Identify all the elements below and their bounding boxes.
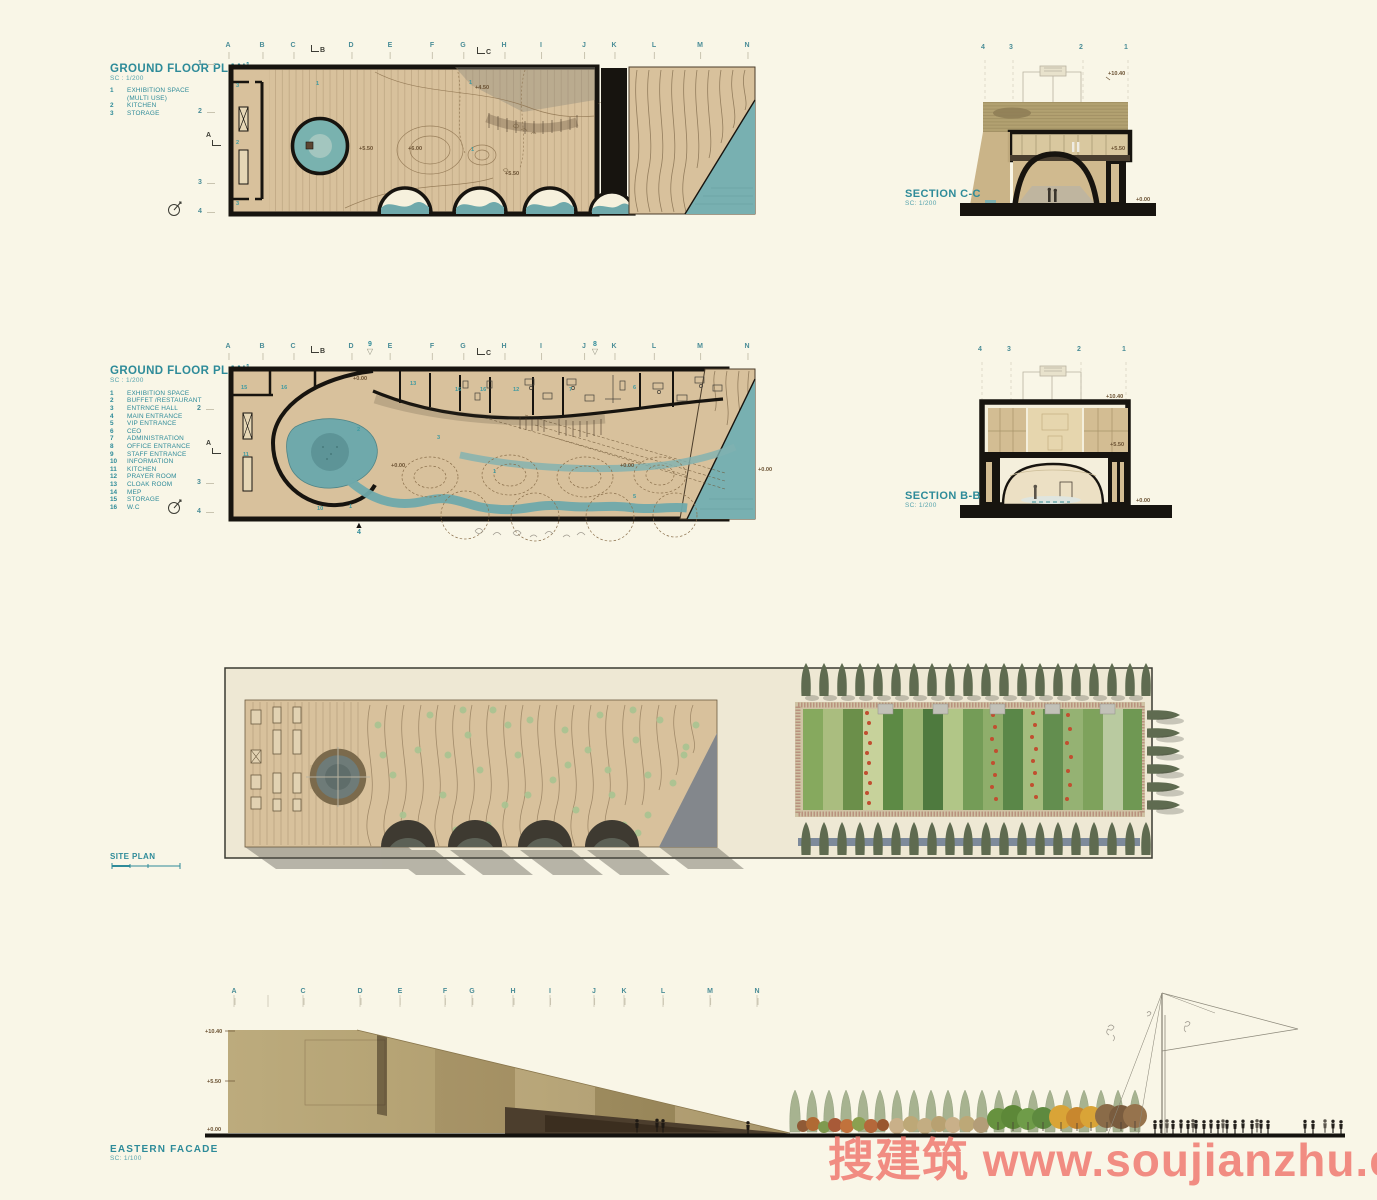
crop-strips xyxy=(803,709,1142,810)
building-roof xyxy=(245,700,717,847)
level-label: +5.50 xyxy=(359,146,373,152)
room-label: 3 xyxy=(236,83,239,89)
north-arrow-icon xyxy=(166,198,186,218)
climber-sketches xyxy=(1107,1012,1190,1042)
grid-ticks xyxy=(234,995,757,1007)
level-label: +10.40 xyxy=(1108,71,1125,77)
section-flag-c: C xyxy=(477,47,491,56)
entrance-marker-9: 9▽ xyxy=(363,341,377,355)
row-number: 3 xyxy=(198,179,202,186)
grid-letter: C xyxy=(290,343,295,350)
site-plan-titleblock: SITE PLAN xyxy=(110,852,155,861)
grid-letter: F xyxy=(430,343,434,350)
room-label: 2 xyxy=(357,427,360,433)
level-label: +0.00 xyxy=(758,467,772,473)
section-flag-b: B xyxy=(311,346,325,355)
section-flag-b: B xyxy=(311,45,325,54)
grid-letter: D xyxy=(348,42,353,49)
grid-letter: I xyxy=(540,343,542,350)
triangle-down-icon: ▽ xyxy=(588,348,602,355)
upper-plan-drawing: +5.50 +6.00 +4.50 +5.50 3 2 3 1 1 1 xyxy=(225,58,760,218)
row-number: 2 xyxy=(197,405,201,412)
watermark: 搜建筑 www.soujianzhu.cn xyxy=(828,1124,1377,1190)
grid-letter: C xyxy=(290,42,295,49)
room-label: 1 xyxy=(316,81,319,87)
north-arrow-icon xyxy=(166,496,186,516)
grid-letter: K xyxy=(611,42,616,49)
section-cc-titleblock: SECTION C-C SC: 1/200 xyxy=(905,188,981,207)
room-label: 2 xyxy=(236,140,239,146)
grid-letter: H xyxy=(501,42,506,49)
ground-bar xyxy=(960,203,1156,216)
facade-titleblock: EASTERN FACADE SC: 1/100 xyxy=(110,1144,218,1162)
row-number: 4 xyxy=(197,508,201,515)
room-label: 15 xyxy=(241,385,247,391)
section-bb-drawing: +10.40 +5.50 +0.00 xyxy=(960,352,1172,527)
section-bb-scale: SC: 1/200 xyxy=(905,502,981,509)
grid-letter: D xyxy=(348,343,353,350)
drawing-sheet: GROUND FLOOR PLAN1 SC : 1/200 1 EXHIBITI… xyxy=(0,0,1377,1200)
level-label: +10.40 xyxy=(1106,394,1123,400)
section-flag-a: A xyxy=(206,132,211,139)
room-label: 1 xyxy=(471,147,474,153)
level-label: +5.50 xyxy=(1111,146,1125,152)
room-label: 3 xyxy=(236,201,239,207)
flag-line-icon xyxy=(311,346,319,353)
arched-openings xyxy=(379,188,576,214)
shadows xyxy=(245,847,744,875)
room-label: 1 xyxy=(469,80,472,86)
entrance-marker-8: 8▽ xyxy=(588,341,602,355)
grid-letter: G xyxy=(460,343,465,350)
level-label: +6.00 xyxy=(408,146,422,152)
level-label: +0.00 xyxy=(207,1127,221,1133)
level-label: +0.00 xyxy=(1136,197,1150,203)
roof-wedge xyxy=(629,67,755,214)
skylight-circle xyxy=(293,119,348,174)
grid-letter: B xyxy=(259,343,264,350)
grid-letter: J xyxy=(582,343,586,350)
grid-letter: N xyxy=(744,343,749,350)
level-label: +10.40 xyxy=(205,1029,222,1035)
grid-letter: H xyxy=(501,343,506,350)
triangle-down-icon: ▽ xyxy=(363,348,377,355)
ground-plan-drawing: +0.00 +0.00 +0.00 +0.00 15 16 13 16 16 1… xyxy=(225,355,775,555)
row-number: 1 xyxy=(198,60,202,67)
level-label: +4.50 xyxy=(475,85,489,91)
grid-letter: A xyxy=(225,42,230,49)
flag-line-icon xyxy=(311,45,319,52)
facade-scale: SC: 1/100 xyxy=(110,1155,218,1162)
room-label: 5 xyxy=(633,494,636,500)
room-label: 16 xyxy=(480,387,486,393)
section-bb-title: SECTION B-B xyxy=(905,490,981,502)
grid-letter: K xyxy=(611,343,616,350)
facade-title: EASTERN FACADE xyxy=(110,1144,218,1155)
flag-line-icon xyxy=(477,348,485,355)
section-bb-titleblock: SECTION B-B SC: 1/200 xyxy=(905,490,981,509)
roof-band xyxy=(983,102,1128,132)
level-label: +5.50 xyxy=(1110,442,1124,448)
grid-letter: L xyxy=(652,343,656,350)
flag-line-icon xyxy=(477,47,485,54)
grid-letter: A xyxy=(225,343,230,350)
room-label: 13 xyxy=(410,381,416,387)
scale-bar xyxy=(110,861,190,871)
section-flag-a: A xyxy=(206,440,211,447)
room-label: 3 xyxy=(437,435,440,441)
grid-letter: E xyxy=(388,42,393,49)
grid-letter: M xyxy=(697,42,703,49)
grid-letter: J xyxy=(582,42,586,49)
roof-structure-lines xyxy=(1023,66,1081,102)
ground-bar xyxy=(960,505,1172,518)
site-plan-drawing xyxy=(218,655,1183,883)
room-label: 6 xyxy=(633,385,636,391)
grid-letter: B xyxy=(259,42,264,49)
grid-letter: F xyxy=(430,42,434,49)
grid-letter: N xyxy=(744,42,749,49)
section-cc-title: SECTION C-C xyxy=(905,188,981,200)
row-number: 2 xyxy=(198,108,202,115)
row-number: 4 xyxy=(198,208,202,215)
level-label: +5.50 xyxy=(207,1079,221,1085)
level-label: +0.00 xyxy=(1136,498,1150,504)
section-cc-drawing: +10.40 +5.50 +0.00 xyxy=(960,50,1172,220)
grid-letter: M xyxy=(697,343,703,350)
section-cc-scale: SC: 1/200 xyxy=(905,200,981,207)
facade-building xyxy=(228,1030,790,1135)
grid-letter: I xyxy=(540,42,542,49)
grid-letter: E xyxy=(388,343,393,350)
grid-letter: G xyxy=(460,42,465,49)
room-label: 16 xyxy=(455,387,461,393)
room-label: 12 xyxy=(513,387,519,393)
facade-slot xyxy=(377,1035,387,1116)
room-label: 1 xyxy=(493,469,496,475)
row-number: 3 xyxy=(197,479,201,486)
site-plan-title: SITE PLAN xyxy=(110,852,155,861)
level-label: +0.00 xyxy=(391,463,405,469)
level-label: +0.00 xyxy=(353,376,367,382)
room-label: 7 xyxy=(569,387,572,393)
grid-letter: L xyxy=(652,42,656,49)
room-label: 16 xyxy=(281,385,287,391)
room-label: 11 xyxy=(243,452,249,458)
level-label: +5.50 xyxy=(505,171,519,177)
room-label: 1 xyxy=(349,504,352,510)
room-label: 10 xyxy=(317,506,323,512)
plant-scribbles xyxy=(475,529,585,538)
level-label: +0.00 xyxy=(620,463,634,469)
